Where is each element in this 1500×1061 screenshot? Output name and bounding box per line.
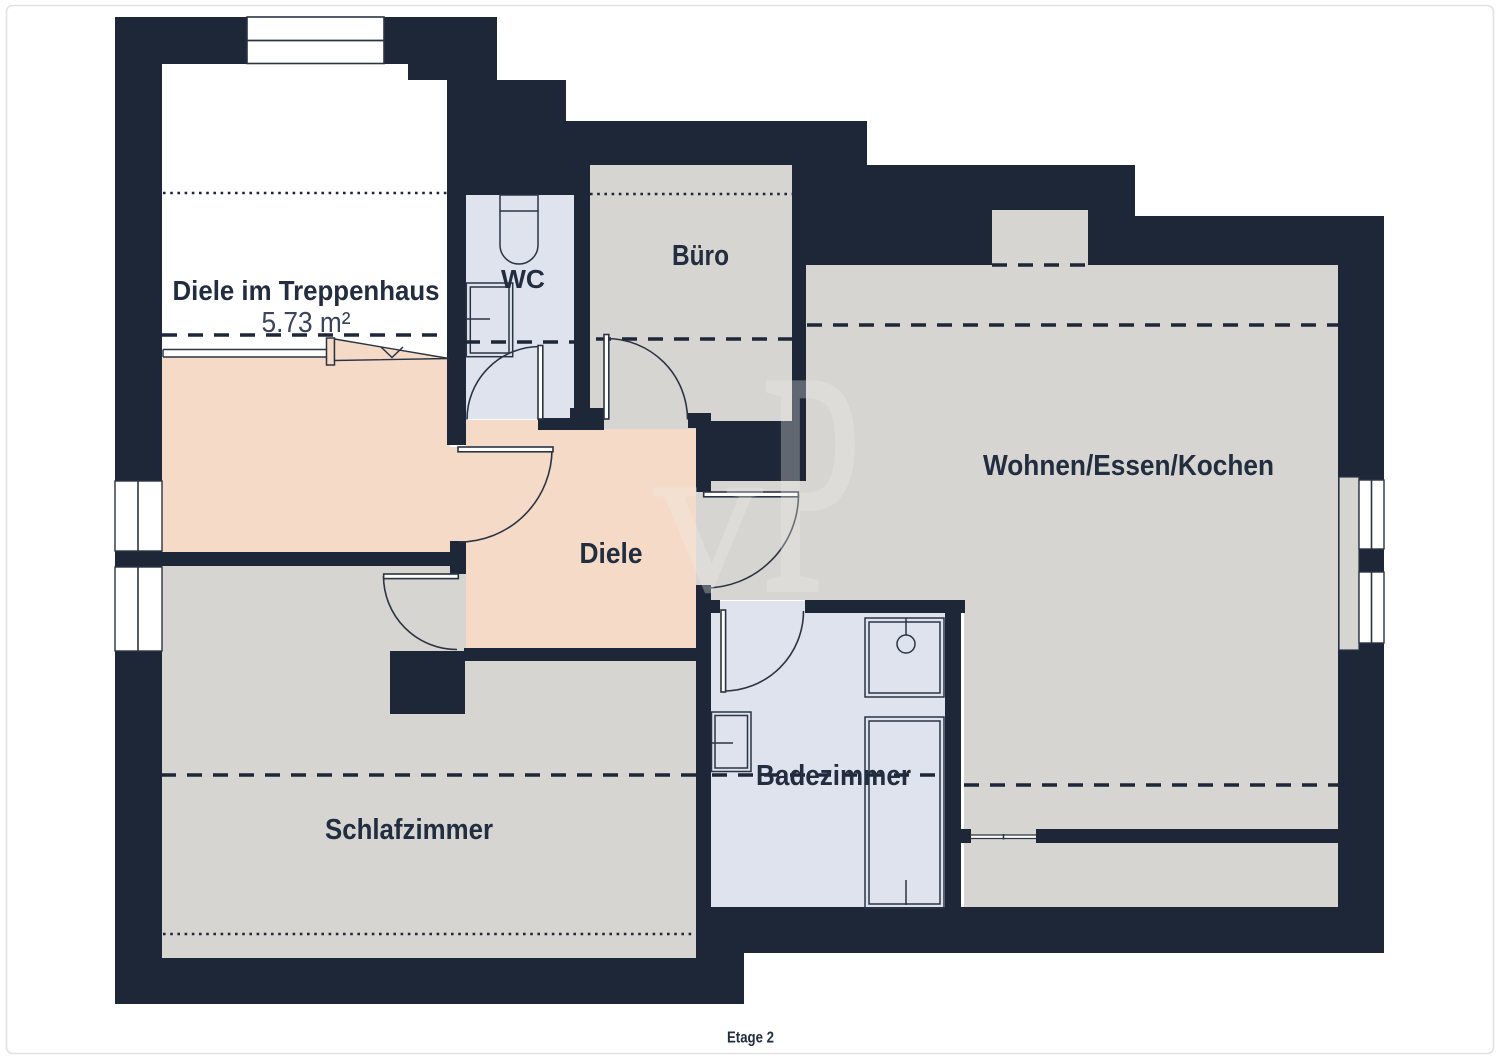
- svg-text:Diele: Diele: [580, 538, 643, 570]
- svg-text:5.73 m²: 5.73 m²: [262, 307, 351, 339]
- svg-text:Wohnen/Essen/Kochen: Wohnen/Essen/Kochen: [983, 450, 1274, 482]
- svg-text:WC: WC: [501, 264, 545, 294]
- svg-text:Etage 2: Etage 2: [727, 1030, 774, 1047]
- svg-text:Diele im Treppenhaus: Diele im Treppenhaus: [173, 275, 440, 306]
- svg-text:P: P: [762, 307, 861, 659]
- svg-text:V: V: [653, 454, 763, 622]
- svg-text:Schlafzimmer: Schlafzimmer: [325, 814, 493, 846]
- svg-text:Büro: Büro: [672, 240, 729, 272]
- svg-text:Badezimmer: Badezimmer: [756, 760, 911, 792]
